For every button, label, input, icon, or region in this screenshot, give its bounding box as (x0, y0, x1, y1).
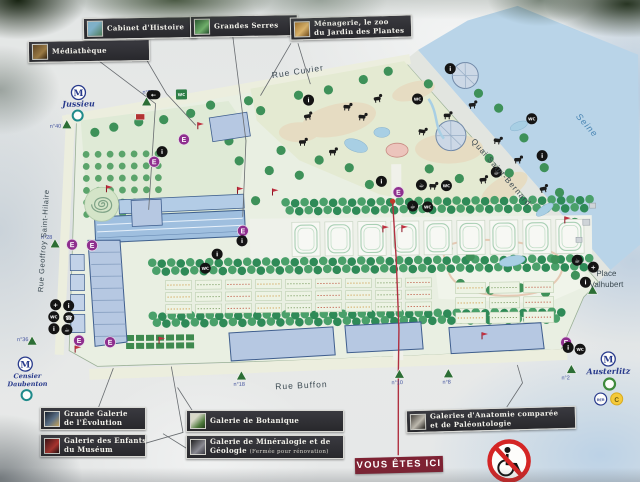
botanical-plot (345, 278, 371, 287)
svg-text:i: i (541, 153, 543, 160)
place-valhubert-label-2: Valhubert (590, 280, 625, 289)
svg-text:i: i (380, 179, 382, 186)
svg-text:WC: WC (443, 183, 450, 188)
svg-text:i: i (307, 97, 309, 104)
legend-label-cabinet: Cabinet d'Histoire (107, 23, 184, 33)
legend-galerie-enfants: Galerie des Enfants du Muséum (40, 434, 146, 457)
botanical-plot (166, 304, 192, 313)
botanical-plot (286, 303, 312, 312)
svg-text:☕: ☕ (64, 327, 69, 334)
svg-text:☎: ☎ (65, 315, 73, 322)
botanical-plot (196, 304, 222, 313)
legend-galerie-mineralogie: Galerie de Minéralogie et de Géologie (F… (186, 435, 344, 459)
entrance-e-marker: E (105, 337, 116, 348)
galerie-botanique-building (229, 327, 335, 361)
legend-label-anatomie-2: et de Paléontologie (430, 418, 559, 430)
hedge (156, 343, 164, 349)
legend-label-enfants-2: du Muséum (64, 446, 147, 455)
no-wheelchair-access-icon (485, 437, 533, 482)
botanical-plot (346, 302, 372, 311)
botanical-plot (286, 291, 312, 300)
entrance-e-marker: E (178, 134, 189, 145)
menagerie-thumbnail-icon (294, 21, 310, 37)
entrance-e-marker: E (393, 187, 404, 198)
botanical-plot (406, 302, 432, 311)
botanical-plot (225, 280, 251, 289)
place-valhubert-label-1: Place (596, 269, 617, 278)
svg-text:E: E (241, 228, 246, 235)
svg-text:E: E (396, 190, 401, 197)
legend-grandes-serres: Grandes Serres (190, 14, 298, 38)
svg-text:WC: WC (50, 314, 57, 319)
svg-text:E: E (90, 243, 95, 250)
entrance-number-label: n°18 (233, 382, 244, 388)
metro-m-censier: M (20, 361, 30, 371)
serres-thumbnail-icon (194, 19, 210, 35)
hedge (176, 334, 184, 340)
enfants-thumbnail-icon (44, 438, 60, 454)
botanical-plot (285, 279, 311, 288)
rer-c-label: C (614, 397, 619, 404)
legend-note-mineralogie: (Fermée pour rénovation) (250, 449, 329, 455)
svg-text:☕: ☕ (419, 182, 424, 189)
svg-text:E: E (70, 242, 75, 249)
parterre-bed (292, 222, 320, 256)
evolution-thumbnail-icon (44, 411, 60, 427)
legend-menagerie: Ménagerie, le zoo du Jardin des Plantes (290, 14, 413, 40)
botanical-plot (196, 292, 222, 301)
botanical-plot (316, 291, 342, 300)
flamingo-pond (386, 143, 408, 157)
entrance-triangle: n°36 (17, 336, 37, 345)
hedge (186, 334, 194, 340)
mineralogie-thumbnail-icon (190, 439, 206, 455)
botanical-plot (406, 290, 432, 299)
metro-label-jussieu: Jussieu (60, 98, 95, 108)
parterre-bed (358, 221, 386, 255)
svg-text:WC: WC (424, 204, 431, 209)
svg-text:i: i (449, 66, 451, 73)
cabinet-thumbnail-icon (87, 21, 103, 37)
hedge (136, 343, 144, 349)
toilets-icon: WC (176, 89, 187, 99)
parterre-bed (424, 221, 452, 255)
botanical-plot (195, 280, 221, 289)
entrance-e-marker: E (237, 225, 248, 236)
entrance-number-label: n°10 (391, 380, 402, 386)
metro-label-austerlitz: Austerlitz (585, 366, 630, 376)
labyrinth-spiral (84, 187, 118, 221)
svg-text:WC: WC (178, 92, 185, 97)
botanical-plot (490, 312, 520, 323)
botanical-plot (405, 278, 431, 287)
legend-galeries-anatomie: Galeries d'Anatomie comparée et de Paléo… (406, 406, 577, 433)
svg-text:E: E (108, 340, 113, 347)
svg-text:E: E (77, 338, 82, 345)
svg-text:i: i (584, 279, 586, 286)
hedge (146, 343, 154, 349)
parterre-bed (523, 220, 551, 254)
legend-label-mediatheque: Médiathèque (52, 46, 107, 55)
botanical-plot (256, 291, 282, 300)
hedge (126, 343, 134, 349)
svg-text:☕: ☕ (410, 203, 415, 210)
entrance-number-label: n°36 (17, 337, 28, 343)
metro-label-censier: Censier (14, 372, 42, 380)
direction-icon: ← (146, 90, 160, 99)
svg-text:WC: WC (414, 97, 421, 102)
botanical-plot (315, 279, 341, 288)
hedge (186, 342, 194, 348)
hedge (176, 342, 184, 348)
entrance-number-label: n°8 (442, 380, 450, 386)
small-red-sign (136, 114, 145, 120)
metro-m-austerlitz: M (603, 355, 613, 365)
legend-label-menagerie-2: du Jardin des Plantes (314, 26, 404, 37)
botanical-plot (226, 292, 252, 301)
botanical-plot (346, 290, 372, 299)
botanical-plot (226, 304, 252, 313)
legend-galerie-botanique: Galerie de Botanique (186, 410, 344, 432)
parterre-bed (556, 219, 584, 253)
entrance-e-marker: E (149, 156, 160, 167)
svg-text:i: i (53, 326, 55, 333)
mediatheque-thumbnail-icon (32, 44, 48, 60)
svg-text:i: i (68, 303, 70, 310)
entrance-e-marker: E (66, 239, 77, 250)
legend-grande-galerie-evolution: Grande Galerie de l'Évolution (40, 407, 146, 430)
botanical-plot (255, 279, 281, 288)
entrance-number-label: n°40 (50, 124, 61, 130)
svg-text:+: + (53, 302, 58, 309)
entrance-triangle: n°2 (561, 364, 576, 381)
botanical-plot (166, 292, 192, 301)
svg-text:+: + (591, 264, 596, 271)
hedge (166, 343, 174, 349)
parterre-bed (457, 220, 485, 254)
rer-label: RER (597, 398, 605, 402)
legend-mediatheque: Médiathèque (28, 39, 150, 63)
botanical-plot (316, 303, 342, 312)
hedge (166, 335, 174, 341)
entrance-e-marker: E (86, 240, 97, 251)
svg-text:i: i (567, 345, 569, 352)
mediatheque-building (131, 199, 162, 226)
svg-text:E: E (182, 137, 187, 144)
botanical-plot (165, 280, 191, 289)
legend-label-mineralogie-2: Géologie (210, 446, 247, 455)
legend-cabinet-histoire: Cabinet d'Histoire (83, 16, 197, 40)
parterre-bed (490, 220, 518, 254)
svg-text:i: i (241, 238, 243, 245)
svg-text:WC: WC (576, 347, 583, 352)
svg-text:WC: WC (202, 266, 209, 271)
galerie-mineralogie-building (345, 322, 423, 353)
legend-label-evolution-2: de l'Évolution (64, 419, 128, 428)
street-label-rue-buffon: Rue Buffon (275, 379, 328, 391)
photographed-map-panel: n°40n°57n°28n°36n°18n°10n°8n°2EEEEEEEEE←… (0, 0, 640, 482)
svg-text:WC: WC (528, 116, 535, 121)
entrance-triangle: n°10 (391, 369, 404, 386)
svg-text:i: i (161, 149, 163, 156)
svg-text:←: ← (151, 92, 156, 99)
botanique-thumbnail-icon (190, 413, 206, 429)
legend-label-serres: Grandes Serres (214, 21, 279, 31)
metro-line-badge-jussieu (73, 110, 83, 120)
metro-line-badge-austerlitz (604, 378, 615, 389)
metro-label-daubenton: Daubenton (6, 380, 47, 388)
entrance-triangle: n°8 (442, 369, 453, 386)
hedge (136, 335, 144, 341)
legend-label-botanique: Galerie de Botanique (210, 417, 299, 426)
toilets-icon: WC (575, 344, 586, 355)
galerie-anatomie-building (449, 323, 544, 354)
you-are-here-badge: VOUS ÊTES ICI (355, 456, 443, 474)
parterre-bed (325, 222, 353, 256)
metro-line-badge-censier (22, 390, 32, 400)
hedge (146, 335, 154, 341)
grande-galerie-evolution-building (88, 240, 127, 346)
botanical-plot (256, 303, 282, 312)
svg-text:i: i (216, 251, 218, 258)
entrance-e-marker: E (73, 335, 84, 346)
svg-text:☕: ☕ (575, 257, 580, 264)
entrance-number-label: n°2 (561, 375, 569, 381)
anatomie-thumbnail-icon (410, 413, 426, 429)
svg-text:E: E (152, 159, 157, 166)
